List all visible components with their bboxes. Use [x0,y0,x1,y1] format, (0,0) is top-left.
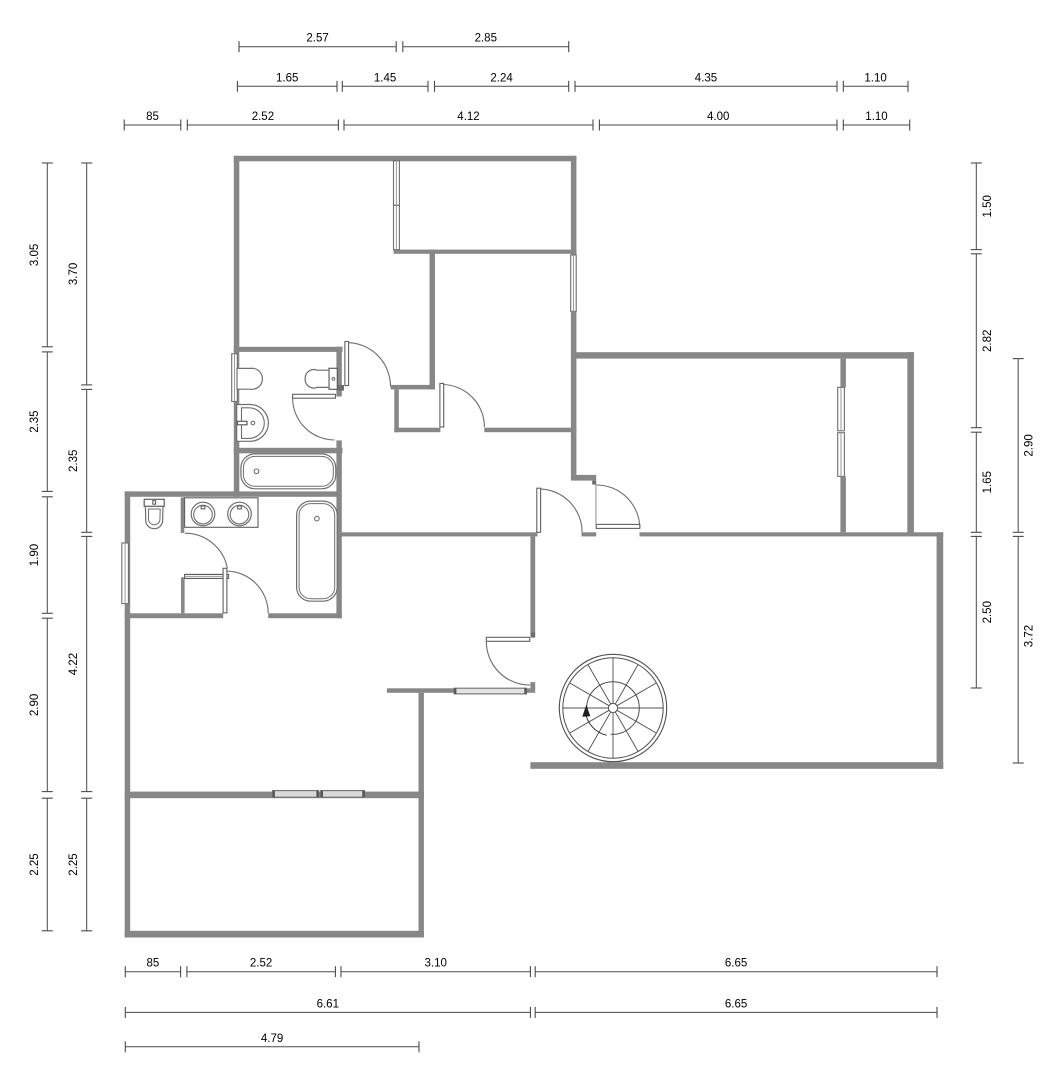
svg-text:6.65: 6.65 [725,958,747,970]
svg-text:4.22: 4.22 [68,653,80,675]
svg-text:2.90: 2.90 [29,694,41,716]
svg-text:2.85: 2.85 [475,33,497,45]
svg-text:2.52: 2.52 [252,111,274,123]
svg-text:2.25: 2.25 [29,853,41,875]
svg-text:2.90: 2.90 [1024,434,1036,456]
svg-text:2.57: 2.57 [306,33,328,45]
svg-text:2.82: 2.82 [982,330,994,352]
svg-text:4.00: 4.00 [707,111,729,123]
svg-text:6.61: 6.61 [317,998,339,1010]
svg-text:2.35: 2.35 [68,450,80,472]
svg-text:1.10: 1.10 [865,111,887,123]
svg-text:1.90: 1.90 [29,544,41,566]
svg-text:4.12: 4.12 [457,111,479,123]
svg-text:6.65: 6.65 [725,998,747,1010]
svg-text:2.35: 2.35 [29,410,41,432]
svg-text:1.10: 1.10 [864,72,886,84]
svg-text:1.50: 1.50 [982,195,994,217]
svg-text:3.10: 3.10 [425,958,447,970]
svg-text:4.79: 4.79 [261,1033,283,1045]
svg-text:1.65: 1.65 [982,471,994,493]
svg-text:2.52: 2.52 [250,958,272,970]
svg-text:2.50: 2.50 [982,601,994,623]
svg-text:4.35: 4.35 [695,72,717,84]
svg-text:1.45: 1.45 [374,72,396,84]
svg-text:2.25: 2.25 [68,853,80,875]
svg-text:3.72: 3.72 [1024,625,1036,647]
svg-text:85: 85 [147,958,160,970]
svg-text:2.24: 2.24 [490,72,513,84]
svg-text:3.70: 3.70 [68,263,80,285]
svg-text:85: 85 [146,111,159,123]
svg-text:3.05: 3.05 [29,244,41,266]
svg-text:1.65: 1.65 [276,72,298,84]
